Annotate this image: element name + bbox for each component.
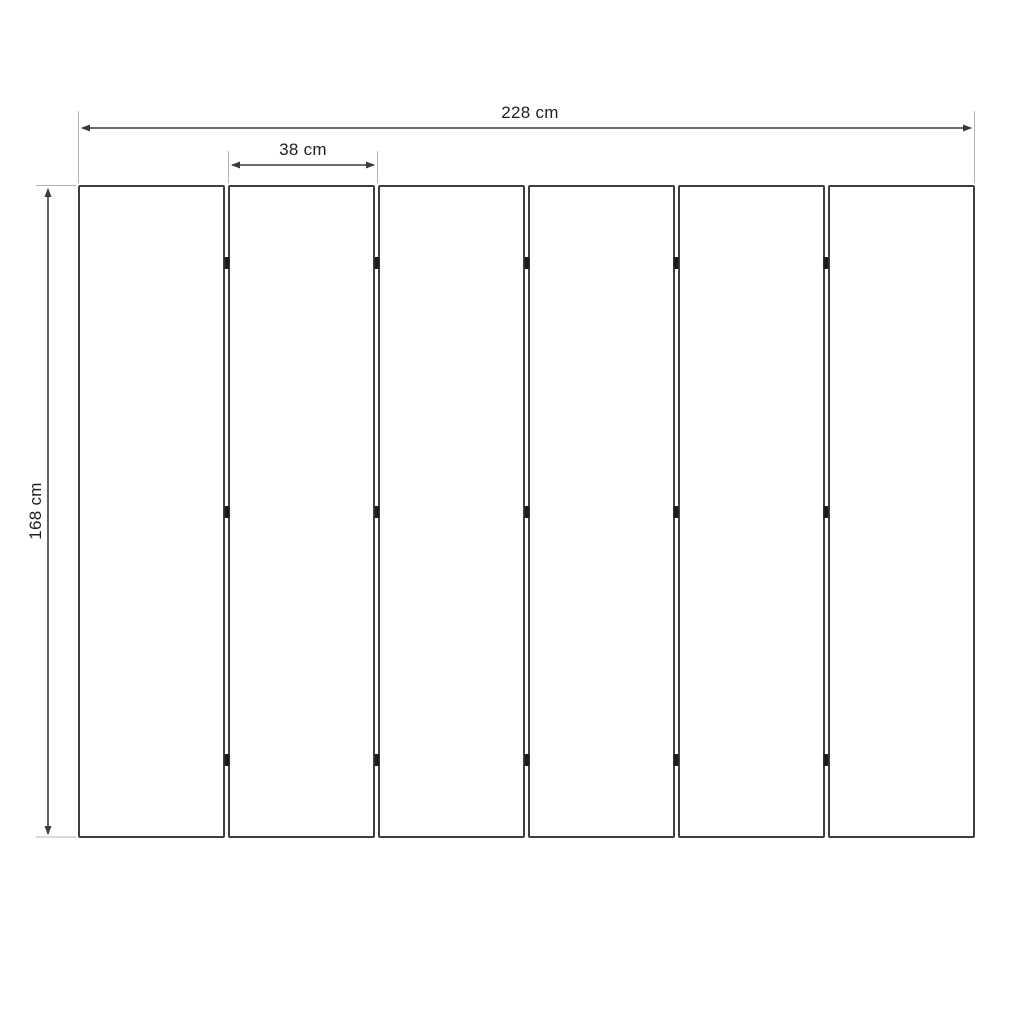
hinge-connector <box>673 257 678 269</box>
hinge-connector <box>225 257 230 269</box>
hinge-connector <box>374 754 379 766</box>
hinge-connector <box>673 506 678 518</box>
panel-width-label: 38 cm <box>243 140 363 160</box>
panel-4 <box>528 185 675 838</box>
panels-row <box>78 185 975 838</box>
diagram-canvas: 228 cm 38 cm 168 cm <box>0 0 1024 1024</box>
panel-5 <box>678 185 825 838</box>
hinge-connector <box>225 754 230 766</box>
total-width-label: 228 cm <box>470 103 590 123</box>
hinge-connector <box>524 506 529 518</box>
hinge-connector <box>823 257 828 269</box>
hinge-connector <box>374 257 379 269</box>
hinge-connector <box>823 506 828 518</box>
hinge-connector <box>823 754 828 766</box>
hinge-connector <box>524 754 529 766</box>
height-label: 168 cm <box>26 451 46 571</box>
hinge-connector <box>225 506 230 518</box>
hinge-connector <box>673 754 678 766</box>
panel-3 <box>378 185 525 838</box>
panel-2 <box>228 185 375 838</box>
hinge-connector <box>374 506 379 518</box>
panel-1 <box>78 185 225 838</box>
hinge-connector <box>524 257 529 269</box>
panel-6 <box>828 185 975 838</box>
